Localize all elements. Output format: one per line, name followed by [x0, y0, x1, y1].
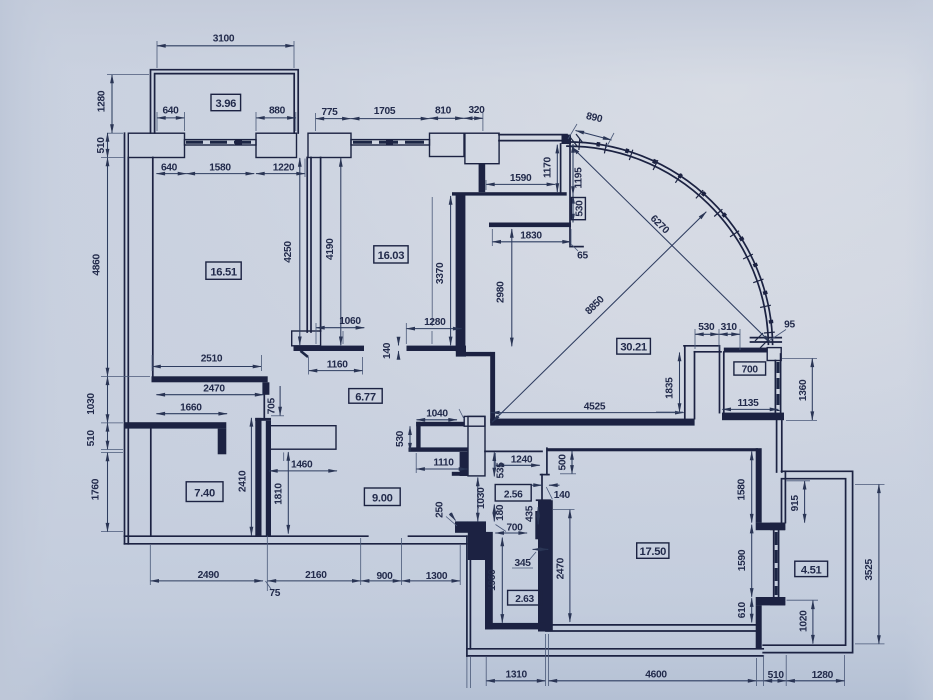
- svg-text:1810: 1810: [273, 483, 284, 505]
- svg-text:1310: 1310: [505, 669, 527, 680]
- svg-text:140: 140: [382, 342, 393, 359]
- svg-text:1195: 1195: [574, 167, 585, 189]
- svg-text:1220: 1220: [273, 162, 295, 173]
- svg-text:1040: 1040: [426, 408, 448, 419]
- svg-text:3370: 3370: [435, 262, 446, 284]
- svg-text:1960: 1960: [487, 569, 498, 591]
- svg-text:435: 435: [524, 505, 535, 522]
- svg-text:2470: 2470: [203, 383, 225, 394]
- svg-text:510: 510: [768, 670, 785, 681]
- svg-text:705: 705: [267, 398, 278, 415]
- svg-text:900: 900: [376, 571, 393, 582]
- svg-text:4860: 4860: [91, 254, 102, 276]
- svg-text:4190: 4190: [325, 238, 336, 260]
- svg-text:510: 510: [96, 137, 107, 154]
- svg-text:16.51: 16.51: [210, 266, 237, 278]
- svg-text:1280: 1280: [424, 317, 446, 328]
- svg-text:530: 530: [395, 430, 406, 447]
- svg-text:2.63: 2.63: [515, 594, 534, 605]
- svg-text:2510: 2510: [201, 354, 223, 365]
- svg-text:700: 700: [742, 364, 759, 375]
- svg-text:4600: 4600: [645, 669, 667, 680]
- svg-text:140: 140: [554, 490, 571, 501]
- svg-text:1760: 1760: [91, 478, 102, 500]
- svg-text:530: 530: [698, 322, 715, 333]
- svg-text:1580: 1580: [209, 162, 231, 173]
- svg-text:1160: 1160: [327, 359, 349, 370]
- svg-text:640: 640: [161, 162, 178, 173]
- svg-text:4.51: 4.51: [801, 564, 822, 576]
- svg-text:1590: 1590: [737, 549, 748, 571]
- svg-text:65: 65: [577, 251, 588, 262]
- svg-text:500: 500: [557, 454, 568, 471]
- svg-text:1280: 1280: [812, 670, 834, 681]
- svg-text:1170: 1170: [542, 157, 553, 179]
- svg-text:535: 535: [495, 462, 506, 479]
- svg-text:1030: 1030: [86, 393, 97, 415]
- svg-text:810: 810: [435, 105, 452, 116]
- svg-text:610: 610: [737, 602, 748, 619]
- svg-text:2470: 2470: [555, 557, 566, 579]
- svg-text:2410: 2410: [237, 470, 248, 492]
- svg-text:775: 775: [321, 107, 338, 118]
- svg-text:640: 640: [162, 106, 179, 117]
- svg-text:1110: 1110: [433, 458, 454, 469]
- svg-text:4525: 4525: [584, 402, 606, 413]
- svg-text:2980: 2980: [496, 281, 507, 303]
- svg-text:1280: 1280: [97, 90, 108, 112]
- svg-text:3525: 3525: [864, 559, 875, 581]
- svg-text:2160: 2160: [305, 570, 327, 581]
- svg-text:3100: 3100: [213, 34, 235, 45]
- svg-text:9.00: 9.00: [372, 493, 393, 505]
- svg-text:915: 915: [790, 495, 801, 512]
- svg-text:1830: 1830: [520, 231, 542, 242]
- svg-text:310: 310: [721, 322, 738, 333]
- svg-text:7.40: 7.40: [194, 488, 215, 500]
- svg-text:1240: 1240: [511, 454, 533, 465]
- svg-text:16.03: 16.03: [378, 250, 405, 262]
- svg-text:3.96: 3.96: [216, 98, 237, 110]
- svg-text:1460: 1460: [291, 460, 313, 471]
- svg-text:1590: 1590: [510, 173, 532, 184]
- svg-text:510: 510: [86, 430, 97, 447]
- svg-text:30.21: 30.21: [620, 342, 647, 354]
- svg-text:1360: 1360: [798, 379, 809, 401]
- svg-text:2490: 2490: [198, 570, 220, 581]
- svg-text:1060: 1060: [339, 316, 361, 327]
- svg-text:320: 320: [468, 105, 485, 116]
- svg-text:1705: 1705: [374, 106, 396, 117]
- svg-text:17.50: 17.50: [640, 546, 667, 558]
- svg-text:1020: 1020: [798, 610, 809, 632]
- svg-text:4250: 4250: [283, 241, 294, 263]
- svg-text:2.56: 2.56: [504, 489, 523, 500]
- svg-text:95: 95: [784, 320, 795, 331]
- svg-text:700: 700: [506, 523, 523, 534]
- svg-text:250: 250: [434, 501, 445, 518]
- svg-text:1660: 1660: [180, 402, 202, 413]
- svg-text:880: 880: [269, 106, 286, 117]
- svg-text:6.77: 6.77: [355, 391, 376, 403]
- svg-text:1300: 1300: [426, 571, 448, 582]
- svg-text:530: 530: [574, 200, 585, 217]
- svg-text:75: 75: [269, 588, 280, 599]
- svg-text:1835: 1835: [665, 377, 676, 399]
- svg-text:1580: 1580: [737, 478, 748, 500]
- svg-text:345: 345: [515, 558, 532, 569]
- svg-text:1135: 1135: [738, 398, 760, 409]
- svg-text:180: 180: [495, 504, 506, 521]
- svg-text:1030: 1030: [476, 487, 487, 509]
